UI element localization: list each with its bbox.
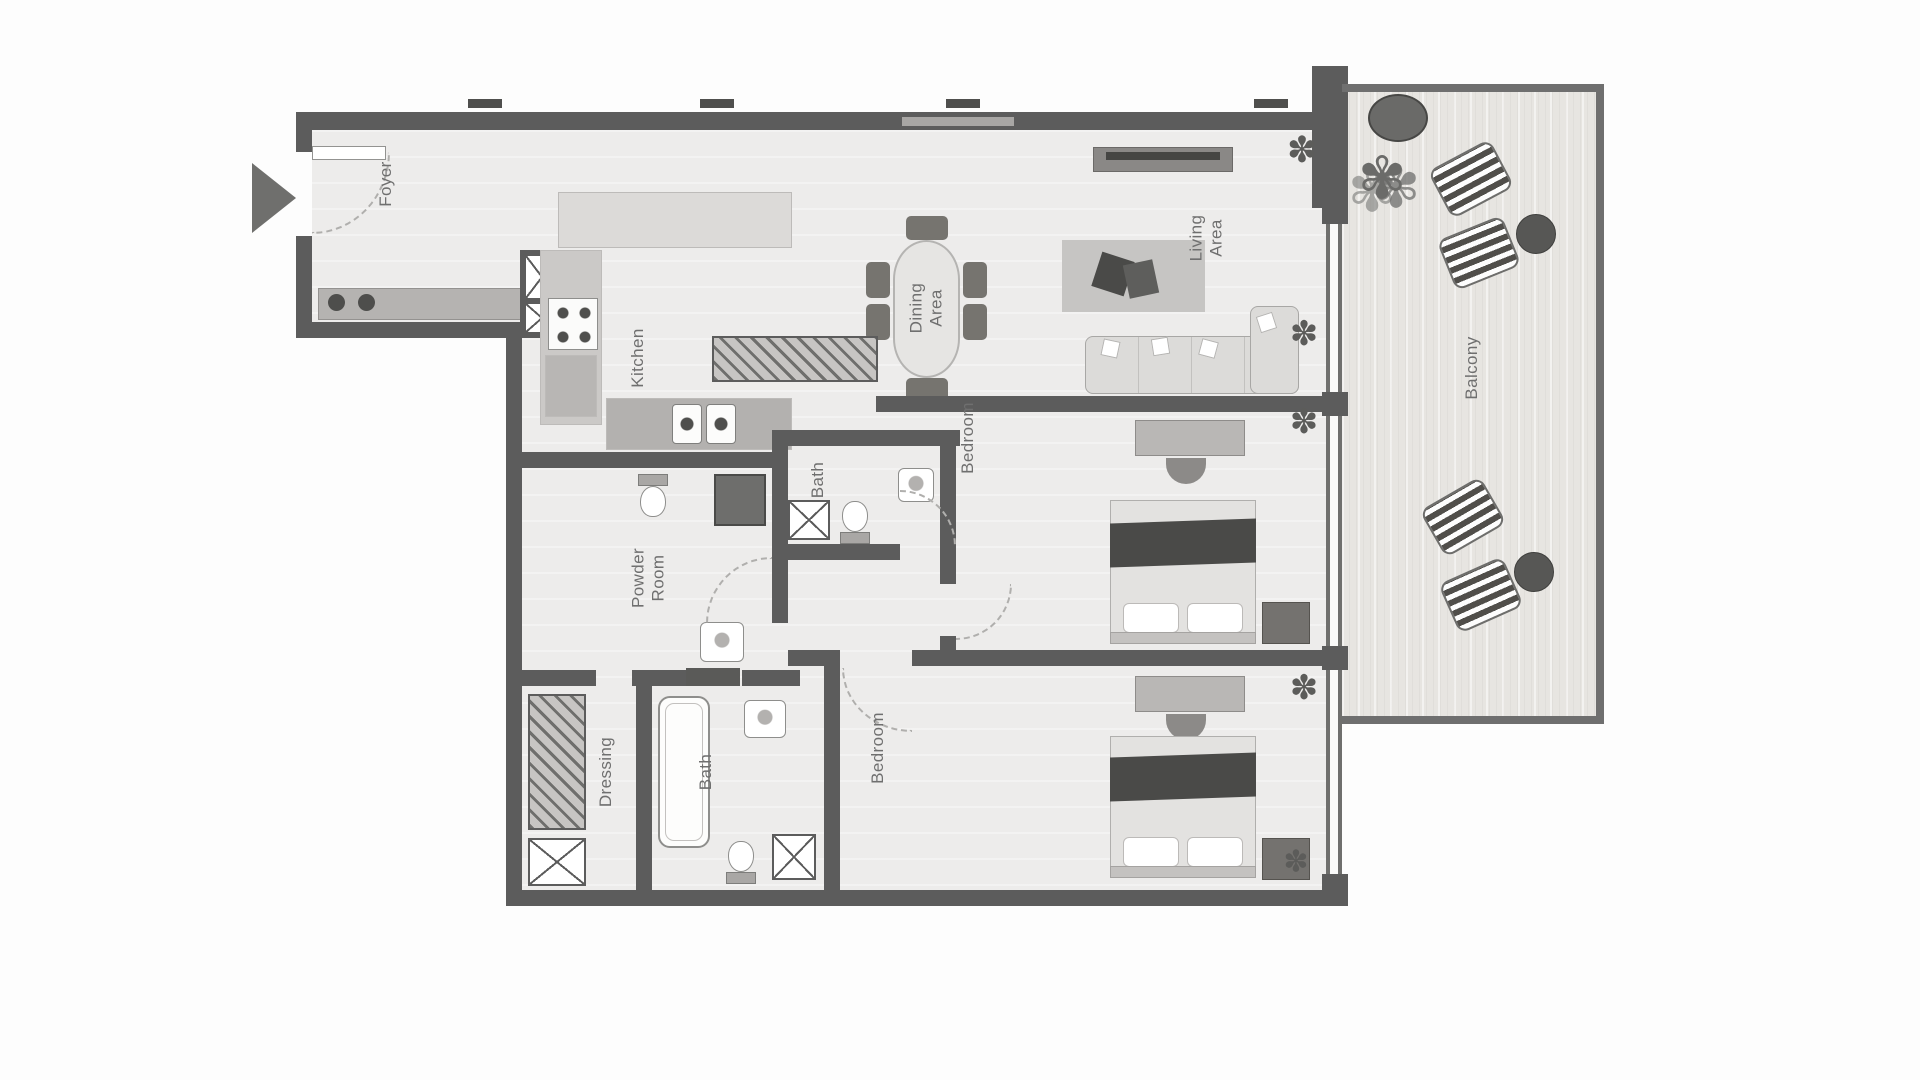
wardrobe-hatch [528,694,586,830]
balcony-rail-bottom [1342,716,1604,724]
bed-headboard [1110,866,1256,878]
dining-chair [866,304,890,340]
floor-plan: Foyer Kitchen Dining Area Living Area Po… [0,0,1920,1080]
wall-powder-bottom [506,670,596,686]
stove-icon [548,298,598,350]
side-table-icon [1516,214,1556,254]
room-label-kitchen: Kitchen [628,328,648,388]
bed-throw [1110,518,1256,567]
wall-top [296,112,1332,130]
wall-living-bed1 [876,396,1332,412]
wall-bottom [506,890,1348,906]
toilet-tank [726,872,756,884]
bath2-shaft-icon [772,834,816,880]
wardrobe-hatch [712,336,878,382]
glass-wall-stub [1322,208,1348,224]
wall-tick [468,99,502,108]
plant-icon: ✽ [1290,668,1319,708]
kitchen-sink-basin-icon [672,404,702,444]
balcony-round-table [1368,94,1428,142]
console-knob-icon [328,294,345,311]
nightstand [1262,602,1310,644]
toilet-icon [838,498,872,544]
wall-dressing-right [636,686,652,890]
room-label-balcony: Balcony [1462,336,1482,399]
toilet-bowl [640,486,666,517]
sink-icon [744,700,786,738]
wall-tick [946,99,980,108]
kitchen-counter-top [558,192,792,248]
bed-throw [1110,752,1256,801]
glass-wall-stub [1322,646,1348,670]
wall-bed1-bed2-a [788,650,840,666]
room-label-powder: Powder Room [628,541,667,615]
glass-line [1338,208,1342,890]
glass-wall-stub [1322,392,1348,416]
bath2-door-leaf [686,668,740,686]
wall-powder-top [506,452,788,468]
toilet-bowl [728,841,754,872]
glass-line [1326,208,1330,890]
kitchen-sink-basin-icon [706,404,736,444]
side-table-icon [1514,552,1554,592]
room-label-bedroom-bottom: Bedroom [868,712,888,784]
plant-icon: ✾ [1358,144,1407,212]
kitchen-appliance [545,355,597,417]
glass-wall-stub [1322,874,1348,906]
dining-chair [963,304,987,340]
shower-icon [714,474,766,526]
toilet-tank [840,532,870,544]
tv-icon [1106,152,1220,160]
sofa-pillow-icon [1100,338,1120,358]
dining-chair [906,216,948,240]
bath-shaft-icon [788,500,830,540]
desk [1135,676,1245,712]
plant-icon: ✽ [1290,402,1319,442]
plant-icon: ✽ [1283,845,1308,880]
room-label-bath-top: Bath [808,462,828,499]
wall-bed1-bed2-b [912,650,1332,666]
balcony-rail-right [1596,84,1604,724]
entrance-arrow-icon [252,163,296,233]
wall-powder-right [772,430,788,623]
dressing-shaft-icon [528,838,586,886]
window-inset [902,117,1014,126]
bed-pillow-icon [1187,603,1243,633]
bed-pillow-icon [1187,837,1243,867]
wall-powder-bottom-b [632,670,686,686]
sink-icon [700,622,744,662]
foyer-console [318,288,530,320]
wall-bath2-right [824,666,840,890]
toilet-icon [724,838,758,884]
bed-headboard [1110,632,1256,644]
wall-tick [1254,99,1288,108]
toilet-icon [636,474,670,520]
wall-powder-bottom-c [742,670,800,686]
wall-left-upper-a [296,112,312,152]
bed-pillow-icon [1123,837,1179,867]
room-label-dining: Dining Area [906,276,945,340]
wall-corridor-east-a [940,560,956,584]
bed [1110,500,1256,644]
room-label-bedroom-top: Bedroom [958,402,978,474]
console-knob-icon [358,294,375,311]
balcony-rail-top [1342,84,1604,92]
plant-icon: ✽ [1287,129,1317,171]
desk [1135,420,1245,456]
sofa-pillow-icon [1151,337,1170,356]
room-label-dressing: Dressing [596,737,616,807]
dining-chair [963,262,987,298]
room-label-foyer: Foyer [376,161,396,206]
bed [1110,736,1256,878]
dining-chair [866,262,890,298]
room-label-living: Living Area [1186,206,1225,270]
bed-pillow-icon [1123,603,1179,633]
wall-bath1-top [772,430,960,446]
wall-tick [700,99,734,108]
toilet-bowl [842,501,868,532]
plant-icon: ✽ [1290,314,1319,354]
wall-left-lower [506,322,522,906]
room-label-bath-bottom: Bath [696,754,716,791]
toilet-tank [638,474,668,486]
wall-bath1-bottom [772,544,900,560]
